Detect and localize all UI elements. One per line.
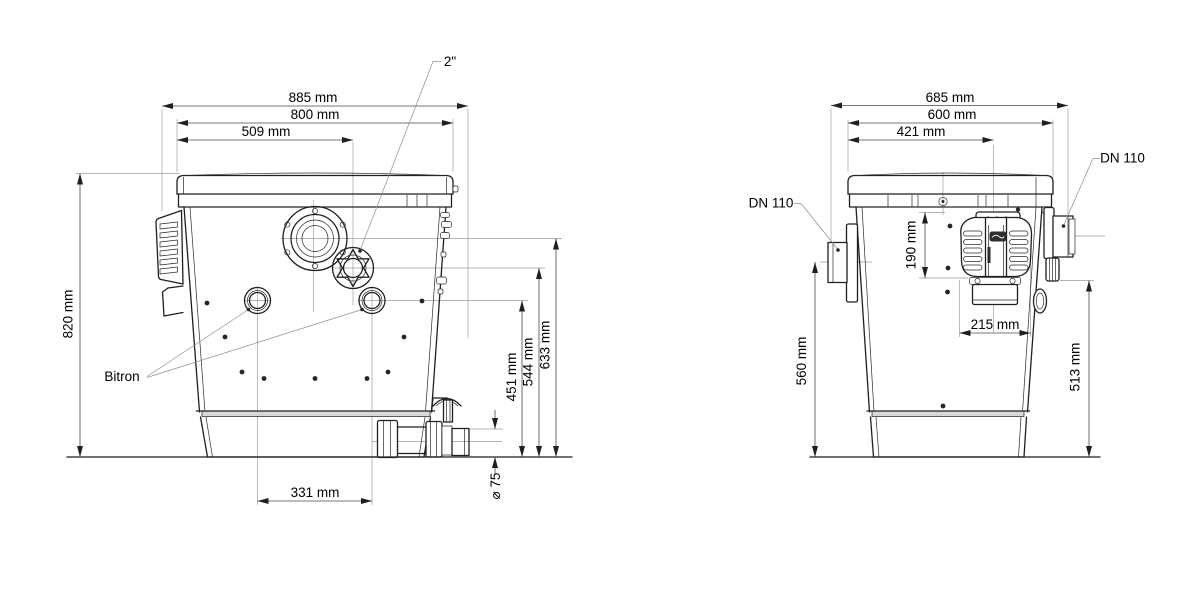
dim-outlet-height: 513 mm — [1068, 343, 1083, 392]
dim-overall-width: 685 mm — [926, 90, 975, 105]
control-unit — [961, 212, 1032, 305]
side-view: 685 mm 600 mm 421 mm DN 110 DN 110 190 m… — [749, 90, 1145, 457]
control-box — [973, 285, 1018, 305]
side-screws — [941, 224, 953, 409]
side-port — [1034, 289, 1047, 313]
dim-lid-width: 600 mm — [928, 107, 977, 122]
dn110-inlet-left — [828, 224, 858, 302]
technical-drawing-page: 885 mm 800 mm 509 mm 2" 820 mm Bitron 45… — [0, 0, 1200, 593]
dim-flange-height: 633 mm — [538, 321, 553, 370]
dim-overall-height: 820 mm — [61, 290, 76, 339]
front-view: 885 mm 800 mm 509 mm 2" 820 mm Bitron 45… — [61, 54, 573, 505]
dim-fitting-offset: 509 mm — [242, 124, 291, 139]
uvc-louver-vent — [156, 211, 183, 317]
dim-drain-diameter: ⌀ 75 — [488, 473, 503, 500]
front-screws — [205, 299, 425, 381]
lid-latch-tab — [453, 186, 458, 192]
dn110-outlet-right — [1034, 208, 1076, 314]
tank-rim — [872, 411, 1024, 417]
dim-fitting-height: 544 mm — [521, 338, 536, 387]
front-tank-body — [184, 207, 446, 457]
dim-port-spacing: 331 mm — [291, 485, 340, 500]
dim-center-offset: 421 mm — [897, 124, 946, 139]
front-lid — [177, 173, 458, 207]
callout-bitron: Bitron — [104, 369, 139, 384]
dimension-drawing: 885 mm 800 mm 509 mm 2" 820 mm Bitron 45… — [0, 0, 1200, 593]
dim-controller-height: 190 mm — [904, 221, 919, 270]
dim-lid-width: 800 mm — [291, 107, 340, 122]
dim-overall-width: 885 mm — [289, 90, 338, 105]
callout-dn110-right: DN 110 — [1100, 151, 1145, 166]
callout-fitting-size: 2" — [444, 54, 457, 69]
front-extension-lines — [76, 109, 562, 505]
dim-controller-width: 215 mm — [971, 317, 1020, 332]
callout-dn110-left: DN 110 — [749, 196, 794, 211]
dim-inlet-height: 560 mm — [794, 337, 809, 386]
tank-rim — [202, 411, 430, 417]
dim-bitron-height: 451 mm — [504, 353, 519, 402]
